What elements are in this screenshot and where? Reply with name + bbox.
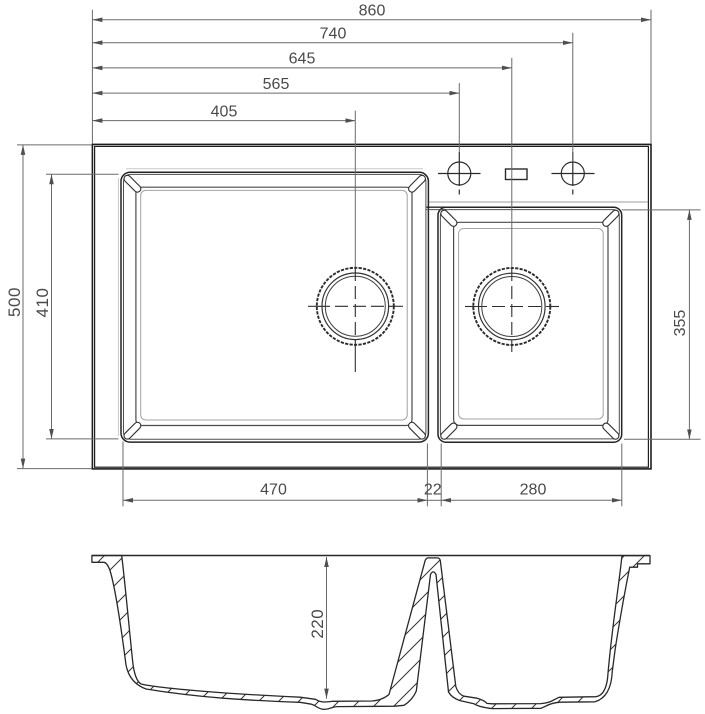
svg-text:740: 740 xyxy=(320,26,347,43)
svg-text:565: 565 xyxy=(263,76,290,93)
svg-text:410: 410 xyxy=(33,288,52,318)
svg-text:355: 355 xyxy=(672,310,689,337)
svg-text:470: 470 xyxy=(260,481,287,498)
svg-text:860: 860 xyxy=(359,3,386,20)
svg-text:500: 500 xyxy=(5,287,24,317)
svg-text:22: 22 xyxy=(424,481,442,498)
svg-text:280: 280 xyxy=(520,481,547,498)
svg-text:220: 220 xyxy=(308,609,327,639)
svg-text:405: 405 xyxy=(211,103,238,120)
svg-text:645: 645 xyxy=(289,51,316,68)
